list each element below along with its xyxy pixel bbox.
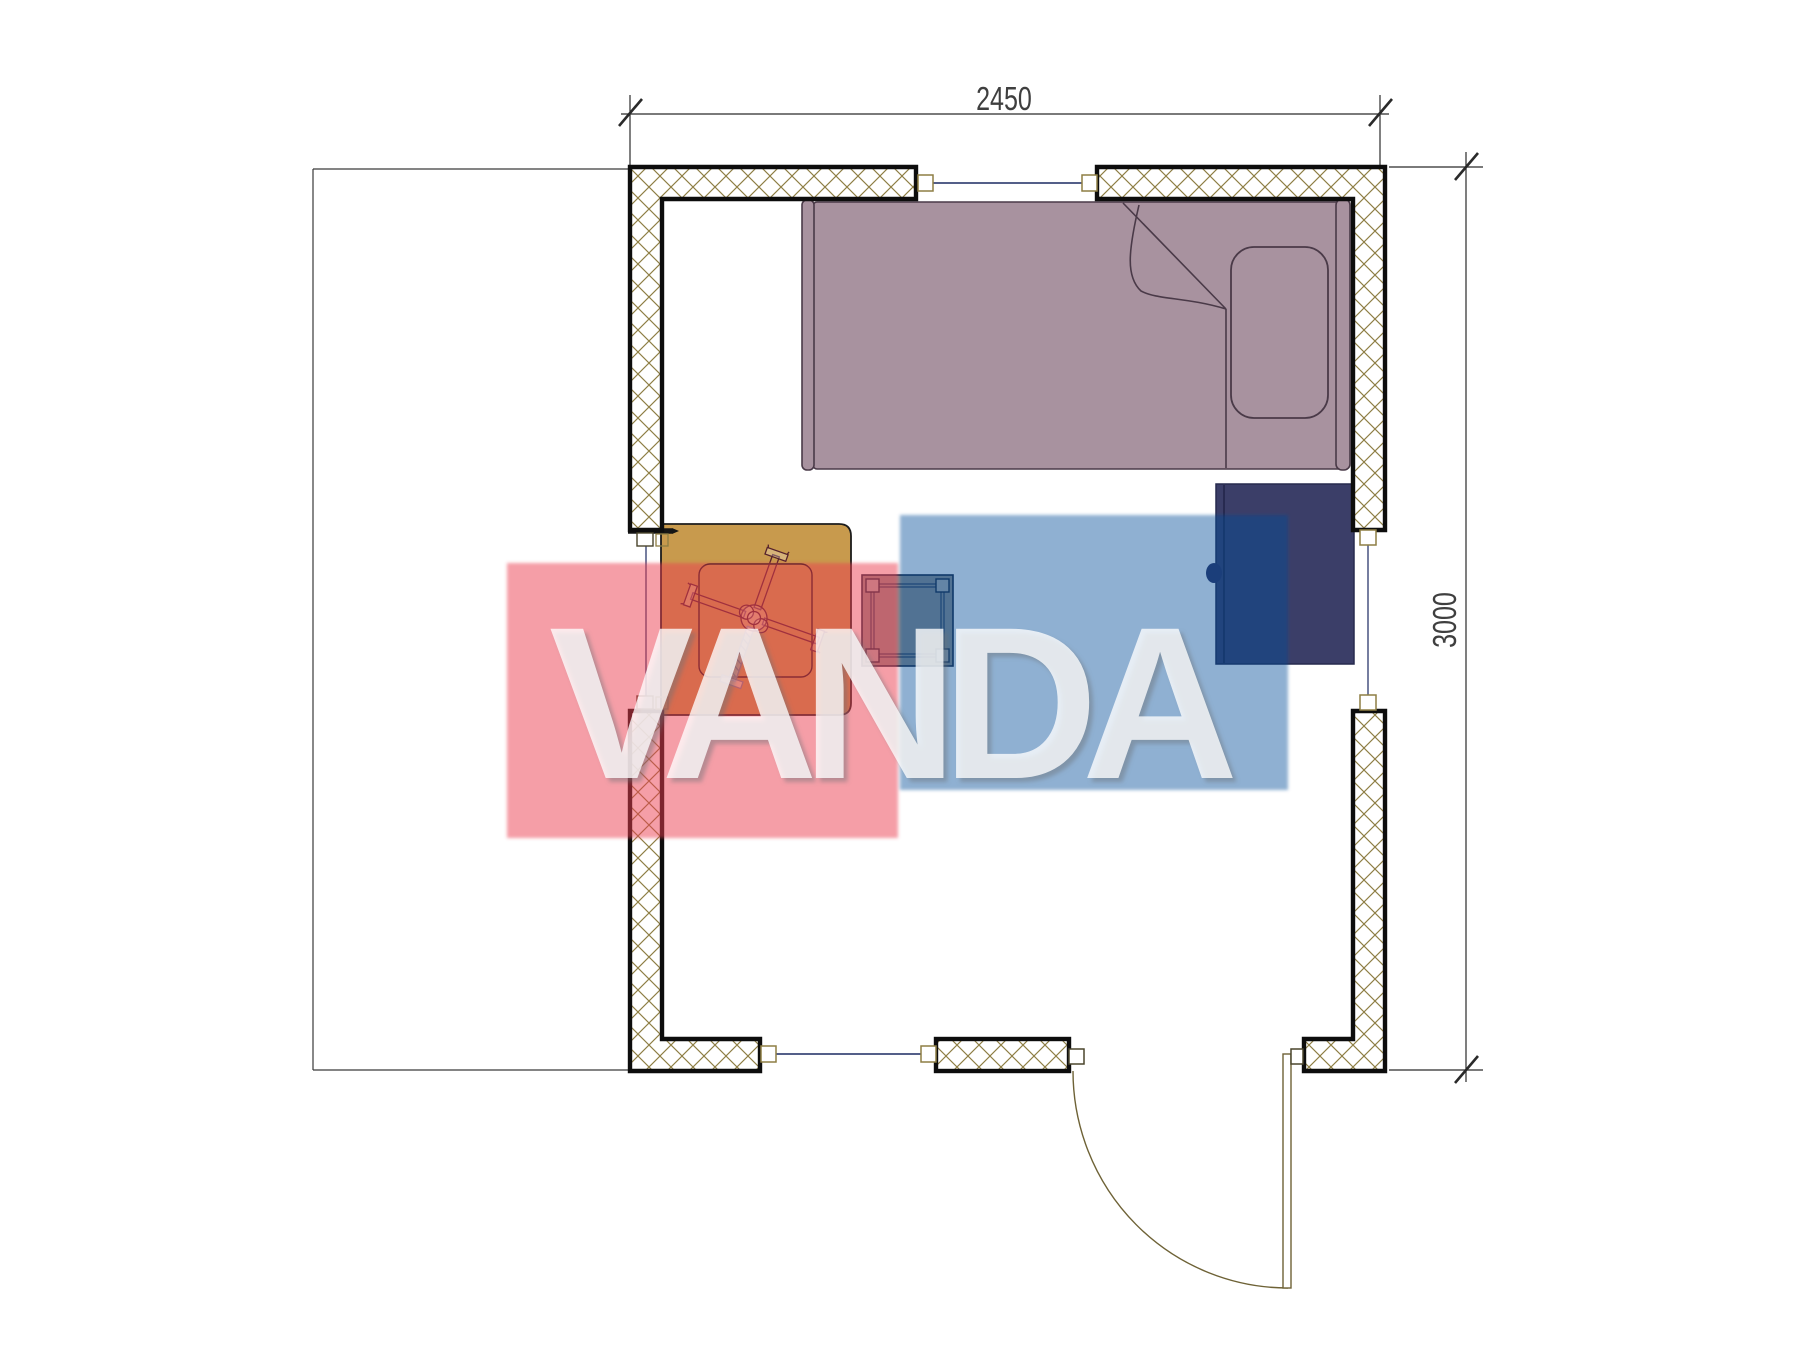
svg-text:3000: 3000 xyxy=(1427,592,1464,648)
svg-text:2450: 2450 xyxy=(976,81,1032,118)
svg-text:VANDA: VANDA xyxy=(549,582,1233,824)
